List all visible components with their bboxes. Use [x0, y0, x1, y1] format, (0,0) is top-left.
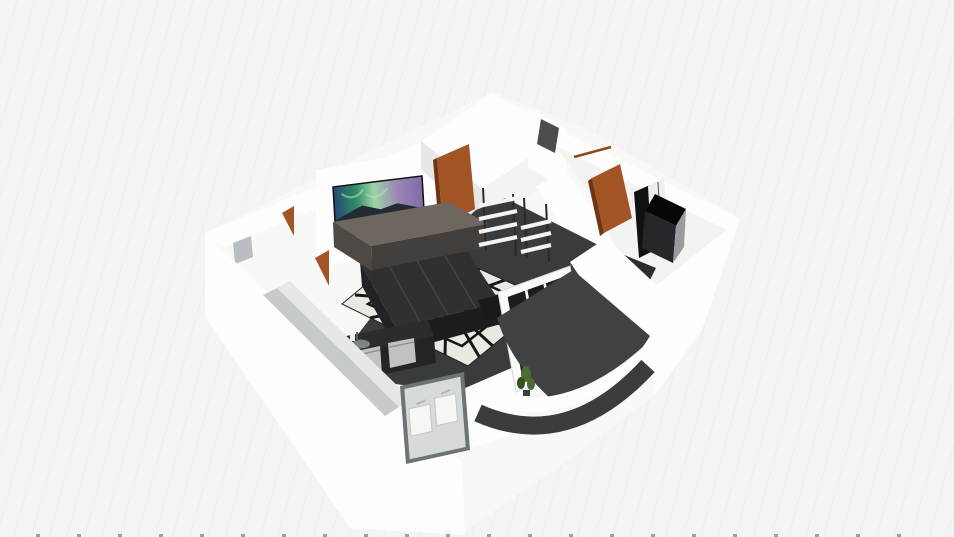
window-sash-left — [409, 404, 432, 436]
floorplan-3d-viewport[interactable] — [0, 0, 954, 537]
plant-leaves — [517, 377, 525, 389]
plant-pot — [523, 390, 530, 396]
plant-leaves — [527, 378, 535, 390]
scene-canvas[interactable] — [0, 0, 954, 537]
window-sash-right — [435, 394, 458, 426]
sink-cup — [350, 332, 355, 341]
front-window[interactable] — [400, 372, 470, 464]
